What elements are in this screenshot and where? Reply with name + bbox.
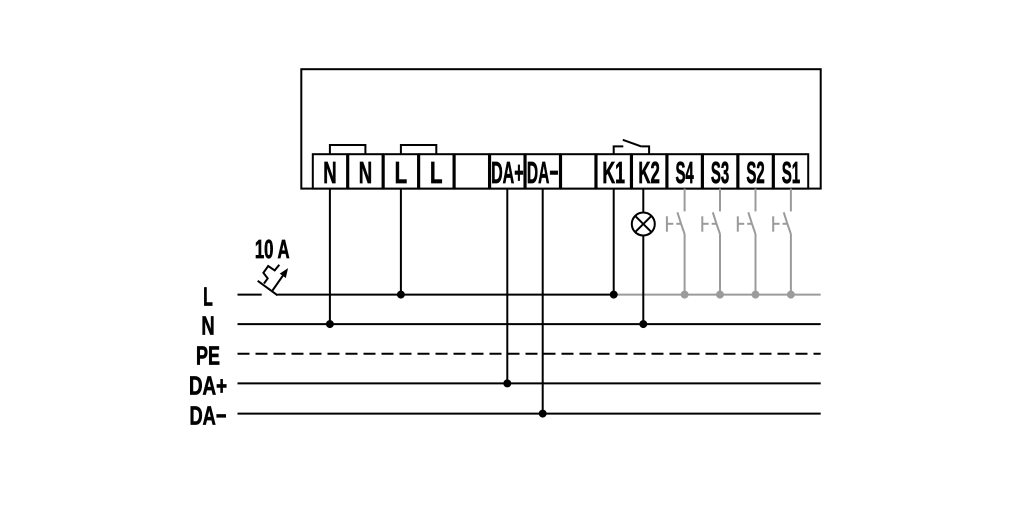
svg-text:L: L [395, 155, 408, 190]
svg-text:DA+: DA+ [189, 372, 227, 401]
svg-text:L: L [203, 282, 213, 311]
svg-text:DA−: DA− [527, 157, 559, 191]
svg-text:N: N [359, 157, 372, 191]
svg-text:DA+: DA+ [491, 157, 523, 191]
svg-text:DA−: DA− [190, 401, 227, 430]
svg-text:S1: S1 [782, 156, 800, 190]
svg-text:10 A: 10 A [255, 234, 290, 264]
svg-text:L: L [430, 155, 443, 190]
svg-text:N: N [201, 311, 214, 340]
svg-text:S3: S3 [711, 156, 729, 190]
svg-text:N: N [323, 157, 336, 191]
svg-text:K2: K2 [638, 156, 659, 191]
svg-text:K1: K1 [602, 156, 625, 190]
svg-text:S4: S4 [675, 156, 694, 190]
svg-text:PE: PE [196, 341, 220, 370]
svg-text:S2: S2 [746, 156, 764, 190]
